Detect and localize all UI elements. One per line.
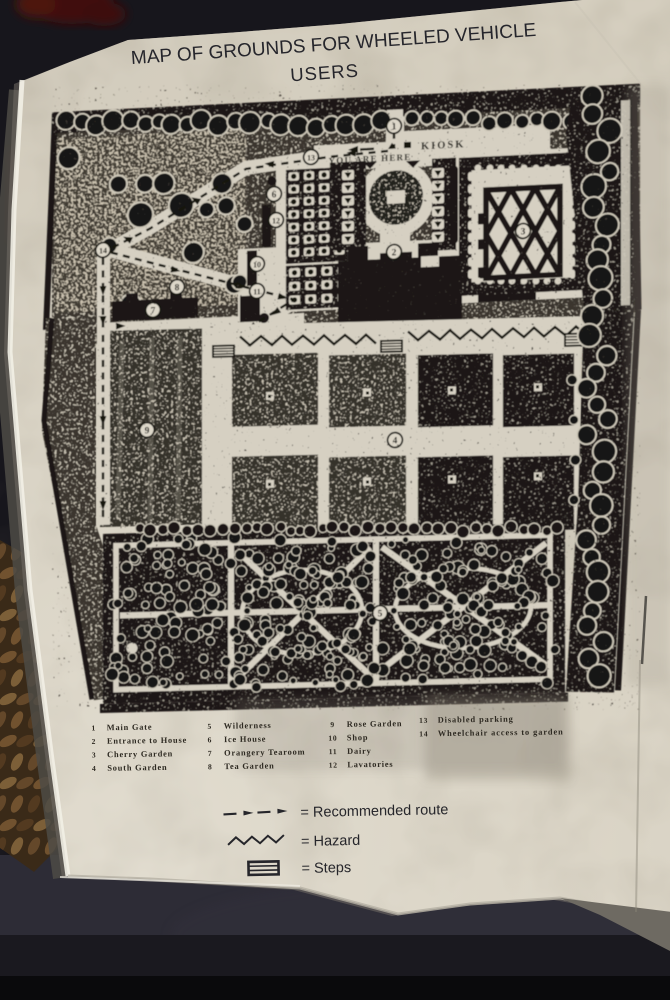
svg-text:3: 3 — [92, 750, 97, 759]
svg-text:Tea Garden: Tea Garden — [224, 761, 274, 771]
svg-text:10: 10 — [328, 734, 337, 743]
svg-text:6: 6 — [208, 735, 213, 744]
svg-text:Entrance to House: Entrance to House — [107, 736, 187, 746]
svg-text:Cherry Garden: Cherry Garden — [107, 749, 173, 759]
svg-text:South Garden: South Garden — [107, 763, 167, 773]
svg-text:= Hazard: = Hazard — [301, 833, 361, 850]
svg-text:13: 13 — [419, 716, 428, 725]
svg-text:Ice House: Ice House — [224, 735, 266, 745]
svg-text:Main Gate: Main Gate — [107, 723, 153, 733]
svg-text:Dairy: Dairy — [347, 747, 372, 756]
svg-text:= Steps: = Steps — [301, 860, 351, 877]
svg-text:Disabled parking: Disabled parking — [438, 715, 514, 725]
svg-text:Orangery Tearoom: Orangery Tearoom — [224, 747, 305, 757]
svg-text:Wilderness: Wilderness — [224, 721, 272, 731]
svg-text:= Recommended route: = Recommended route — [300, 802, 448, 821]
svg-text:Lavatories: Lavatories — [347, 760, 393, 770]
svg-text:14: 14 — [419, 729, 428, 738]
svg-text:Rose Garden: Rose Garden — [347, 719, 403, 729]
svg-text:12: 12 — [329, 761, 338, 770]
svg-text:Wheelchair access to garden: Wheelchair access to garden — [438, 727, 564, 738]
svg-text:8: 8 — [208, 762, 213, 771]
svg-text:2: 2 — [92, 737, 97, 746]
svg-text:5: 5 — [207, 722, 212, 731]
svg-text:1: 1 — [91, 723, 96, 732]
svg-text:Shop: Shop — [347, 733, 368, 742]
svg-text:11: 11 — [329, 747, 338, 756]
svg-text:7: 7 — [208, 749, 213, 758]
svg-text:4: 4 — [92, 764, 97, 773]
svg-text:9: 9 — [330, 720, 335, 729]
